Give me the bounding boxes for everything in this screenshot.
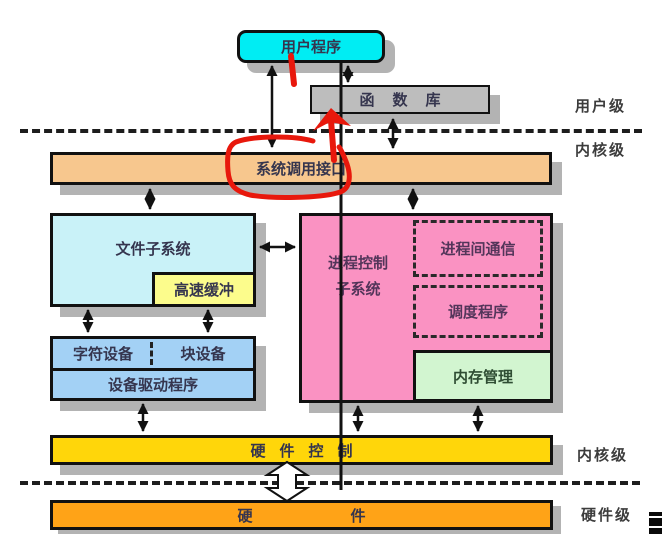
user-program-label: 用户程序	[281, 36, 341, 57]
process-control-subsystem-label: 进程控制 子系统	[308, 250, 408, 302]
device-divider-dashed	[150, 342, 153, 365]
buffer-cache-box: 高速缓冲	[152, 272, 256, 307]
hardware-level-label: 硬件级	[581, 504, 632, 525]
hardware-control-label: 硬件控制	[250, 440, 366, 461]
char-device-label: 字符设备	[73, 343, 133, 364]
memory-management-label: 内存管理	[453, 366, 513, 387]
ipc-label: 进程间通信	[440, 238, 515, 259]
user-kernel-divider-line	[20, 129, 642, 133]
user-program-box: 用户程序	[237, 30, 385, 63]
memory-management-box: 内存管理	[413, 350, 553, 402]
kernel-hardware-divider-line	[20, 481, 640, 485]
unix-kernel-architecture-diagram: 用户程序 函数库 系统调用接口 文件子系统 高速缓冲 进程控制 子系统 进程间通…	[0, 0, 662, 534]
system-call-interface-box: 系统调用接口	[50, 152, 552, 185]
hardware-control-box: 硬件控制	[50, 435, 553, 465]
library-label: 函数库	[359, 89, 458, 110]
user-level-label: 用户级	[575, 95, 626, 116]
device-driver-label: 设备驱动程序	[108, 374, 198, 395]
ipc-box: 进程间通信	[413, 220, 543, 277]
buffer-cache-label: 高速缓冲	[174, 279, 234, 300]
block-device-label: 块设备	[180, 343, 225, 364]
kernel-level-label-top: 内核级	[575, 139, 626, 160]
file-subsystem-label: 文件子系统	[115, 238, 190, 259]
hardware-box: 硬件	[50, 500, 553, 530]
system-call-interface-label: 系统调用接口	[256, 158, 346, 179]
partial-glyph	[649, 512, 662, 534]
scheduler-label: 调度程序	[448, 301, 508, 322]
library-box: 函数库	[310, 85, 490, 114]
kernel-level-label-bottom: 内核级	[577, 444, 628, 465]
scheduler-box: 调度程序	[413, 285, 543, 338]
device-layer-box: 字符设备 块设备 设备驱动程序	[50, 336, 256, 401]
hardware-label: 硬件	[237, 505, 463, 526]
